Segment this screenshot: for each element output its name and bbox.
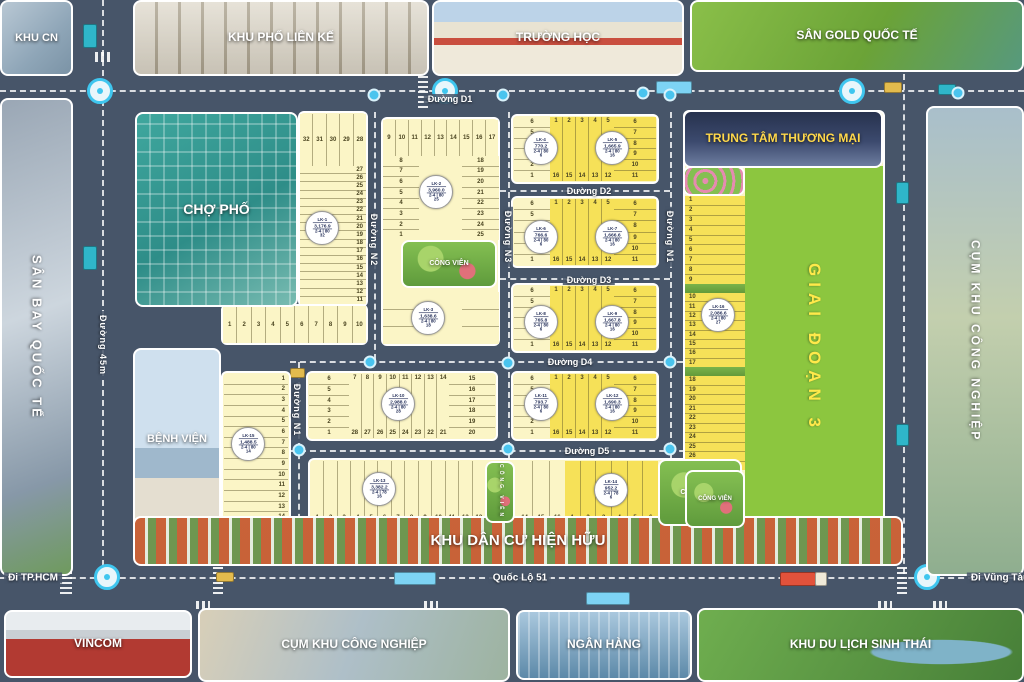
lot-cell: 16 [550,461,565,523]
lot-info-badge: LK-13,176.92-4 | 8032 [305,211,339,245]
lot-cell: 3 [309,406,349,417]
badge-area: 766.6 [534,231,549,238]
lot-cell: 6 [514,374,550,385]
lot-cell: 7 [685,255,745,265]
lot-cell: 4 [266,306,280,343]
lot-cell: 4 [309,396,349,407]
lot-strip-b-left: 87654321 [383,156,419,240]
photo-label-cum-kcn-right: CỤM KHU CÔNG NGHIỆP [928,108,1022,574]
photo-cho-pho: CHỢ PHỐ [135,112,298,307]
lot-cell: 6 [614,117,656,128]
photo-label-san-bay: SÂN BAY QUỐC TẾ [2,100,71,574]
vehicle-icon [216,572,234,582]
lot-cell: 14 [300,272,366,280]
lot-cell: 22 [462,199,499,210]
lot-cell: 22 [300,207,366,215]
lot-cell [462,292,499,310]
badge-area: 952.2 [604,484,619,491]
lot-strip-b-lower-r [462,292,499,344]
road-label-ql51: Quốc Lộ 51 [489,573,551,584]
photo-cong-vien-j: CÔNG VIÊN [685,470,745,528]
badge-area: 1,488.5 [238,438,257,445]
photo-label-san-gold: SÂN GOLD QUỐC TẾ [692,2,1022,70]
badge-count: 32 [320,234,325,238]
lot-strip-f-right: 151617181920 [449,374,495,438]
photo-ngan-hang: NGÂN HÀNG [516,610,692,680]
lot-cell: 215 [563,199,576,265]
road-label-d3: Đường D3 [563,275,615,285]
lot-cell: 2 [383,220,419,231]
lot-cell: 16 [685,349,745,358]
road-label-n1-left: Đường N1 [292,380,302,440]
lot-cell: 16 [449,385,495,396]
vehicle-icon [780,572,816,586]
vehicle-icon [586,592,630,605]
road-label-n1-right: Đường N1 [665,207,675,267]
lot-info-badge: LK-121,690.32-4 | 8016 [595,387,629,421]
lot-strip-b-right: 1819202122232425 [462,156,499,240]
lot-cell: 7 [309,306,323,343]
road-label-n3: Đường N3 [503,207,513,267]
lot-cell: 11 [446,461,459,523]
green-strip [685,284,745,293]
junction-dot [368,89,381,102]
road-label-d2: Đường D2 [563,186,615,196]
photo-label-cong-vien-b: CÔNG VIÊN [403,242,495,286]
lot-cell: 1 [383,230,419,240]
lot-info-badge: LK-133,382.22-4 | 7816 [362,472,396,506]
lot-strip-h-seg2: 141516 [517,461,565,523]
lot-cell: 6 [383,177,419,188]
badge-count: 14 [246,450,251,454]
lot-info-badge: LK-71,666.62-4 | 8016 [595,220,629,254]
badge-count: 6 [540,154,542,158]
lot-info-badge: LK-162,086.62-4 | 8027 [701,298,735,332]
lot-cell: 17 [300,248,366,256]
road-label-d1: Đường D1 [424,94,476,104]
photo-khu-dan-cu: KHU DÂN CƯ HIỆN HỮU [133,516,903,566]
lot-cell: 23 [462,209,499,220]
lot-cell: 11 [300,297,366,304]
vehicle-icon [83,246,97,270]
lot-cell: 10 [353,306,366,343]
lot-cell: 11 [224,480,288,491]
badge-count: 6 [610,496,612,500]
lot-cell: 11 [409,120,422,156]
lot-cell: 827 [362,374,375,438]
lot-cell: 1 [309,428,349,438]
photo-truong-hoc: TRƯỜNG HỌC [432,0,684,76]
lot-cell: 314 [576,374,589,438]
lot-cell: 11 [614,255,656,265]
lot-cell: 13 [224,502,288,513]
lot-cell: 9 [685,275,745,284]
lot-cell: 6 [309,374,349,385]
lot-cell: 13 [435,120,448,156]
lot-strip-j1: 123456789 [685,196,745,284]
crosswalk [897,567,907,594]
lot-cell: 24 [685,433,745,443]
badge-area: 1,690.3 [602,398,621,405]
lot-info-badge: LK-91,667.82-4 | 8016 [595,305,629,339]
photo-khu-pho-lien-ke: KHU PHỐ LIÊN KẾ [133,0,429,76]
photo-label-tttm: TRUNG TÂM THƯƠNG MẠI [685,112,881,166]
lot-cell: 30 [327,114,340,166]
badge-area: 2,988.0 [388,398,407,405]
badge-count: 16 [377,495,382,499]
lot-cell: 5 [383,188,419,199]
lot-cell: 19 [449,417,495,428]
badge-area: 3,176.9 [312,222,331,229]
lot-cell: 6 [685,245,745,255]
lot-cell: 5 [309,385,349,396]
lot-cell: 24 [462,220,499,231]
badge-area: 765.8 [534,316,549,323]
lot-info-badge: LK-51,665.92-4 | 8016 [595,131,629,165]
lot-cell: 2 [237,306,251,343]
lot-cell: 6 [295,306,309,343]
lot-cell: 215 [563,374,576,438]
lot-cell: 17 [449,396,495,407]
photo-cong-vien-b: CÔNG VIÊN [401,240,497,288]
lot-cell: 314 [576,286,589,350]
lot-info-badge: LK-14952.22-4 | 786 [594,473,628,507]
badge-count: 25 [434,198,439,202]
lot-cell: 1 [311,461,324,523]
junction-dot [502,443,515,456]
road-label-di-vungtau: Đi Vũng Tàu [967,573,1024,584]
lot-cell: 28 [354,114,366,166]
lot-cell: 16 [473,120,486,156]
photo-label-khu-cn: KHU CN [2,2,71,74]
badge-area: 793.7 [534,398,549,405]
road-centerline [0,90,1024,92]
badge-area: 1,665.9 [602,142,621,149]
badge-area: 3,382.2 [369,483,388,490]
lot-cell: 8 [383,156,419,167]
photo-label-khu-pho-lien-ke: KHU PHỐ LIÊN KẾ [135,2,427,74]
road-label-r45: Đường 45m [98,311,108,379]
lot-cell [462,327,499,344]
road-centerline [903,74,905,574]
badge-area: 1,638.6 [418,312,437,319]
badge-count: 16 [610,410,615,414]
lot-cell: 215 [563,286,576,350]
junction-dot [664,443,677,456]
photo-label-vincom: VINCOM [6,612,190,676]
lot-cell: 10 [396,120,409,156]
lot-cell: 8 [405,461,418,523]
crosswalk [95,52,111,62]
vehicle-icon [815,572,827,586]
lot-cell: 31 [313,114,326,166]
photo-label-truong-hoc: TRƯỜNG HỌC [434,2,682,74]
lot-cell: 5 [281,306,295,343]
lot-cell: 7 [614,210,656,221]
road-centerline [508,112,510,458]
lot-cell: 1322 [425,374,438,438]
lot-cell: 3 [252,306,266,343]
lot-cell: 8 [685,265,745,275]
lot-info-badge: LK-23,960.02-4 | 8025 [419,175,453,209]
lot-cell: 3 [685,216,745,226]
lot-cell: 12 [224,491,288,502]
lot-cell: 1 [514,340,550,350]
lot-cell: 23 [300,199,366,207]
lot-cell: 1 [685,196,745,206]
badge-count: 27 [716,321,721,325]
lot-cell: 9 [419,461,432,523]
badge-area: 3,960.0 [426,186,445,193]
phase-3-label: GIAI ĐOẠN 3 [804,263,824,433]
badge-area: 770.2 [534,142,549,149]
lot-strip-h-seg1: 12345678910111213 [311,461,485,523]
lot-cell: 13 [473,461,485,523]
road-label-di-hcm: Đi TP.HCM [4,573,62,584]
lot-cell: 32 [300,114,313,166]
photo-label-du-lich: KHU DU LỊCH SINH THÁI [699,610,1022,680]
lot-cell: 4 [685,226,745,236]
lot-info-badge: LK-31,638.62-4 | 8018 [411,301,445,335]
lot-info-badge: LK-11793.72-4 | 806 [524,387,558,421]
badge-count: 28 [396,410,401,414]
lot-cell: 6 [614,199,656,210]
vehicle-icon [290,368,305,378]
lot-cell: 17 [685,359,745,367]
vehicle-icon [896,424,909,446]
lot-cell: 15 [685,340,745,349]
lot-cell: 14 [447,120,460,156]
lot-cell: 6 [614,286,656,297]
lot-cell: 20 [462,177,499,188]
roundabout-icon [87,78,113,104]
lot-cell: 9 [224,459,288,470]
lot-cell: 215 [563,117,576,181]
vehicle-icon [394,572,436,585]
junction-dot [293,444,306,457]
badge-count: 16 [610,243,615,247]
lot-cell: 16 [300,256,366,264]
lot-cell: 15 [449,374,495,385]
junction-dot [664,356,677,369]
photo-cum-kcn-right: CỤM KHU CÔNG NGHIỆP [926,106,1024,576]
lot-cell: 20 [449,428,495,438]
junction-dot [952,87,965,100]
junction-dot [664,89,677,102]
lot-strip-f-left: 654321 [309,374,349,438]
photo-label-cum-kcn-bottom: CỤM KHU CÔNG NGHIỆP [200,610,508,680]
lot-cell: 6 [643,461,658,523]
lot-cell: 12 [459,461,472,523]
lot-cell: 6 [514,199,550,210]
lot-cell: 1 [514,255,550,265]
lot-cell: 7 [383,167,419,178]
photo-san-gold: SÂN GOLD QUỐC TẾ [690,0,1024,72]
lot-cell: 3 [383,209,419,220]
lot-cell: 15 [533,461,549,523]
lot-cell: 9 [383,120,396,156]
lot-strip-j3: 18192021222324252627 [685,376,745,470]
lot-info-badge: LK-102,988.02-4 | 8028 [381,387,415,421]
lot-cell: 1 [514,428,550,438]
lot-cell: 11 [614,428,656,438]
lot-cell: 728 [349,374,362,438]
photo-san-bay: SÂN BAY QUỐC TẾ [0,98,73,576]
lot-cell: 314 [576,117,589,181]
lot-cell: 15 [460,120,473,156]
road-label-d5: Đường D5 [561,446,613,456]
road-label-n2: Đường N2 [369,210,379,270]
lot-cell: 21 [462,188,499,199]
lot-cell: 25 [300,182,366,190]
badge-area: 1,667.8 [602,316,621,323]
lot-cell: 18 [462,156,499,167]
road-centerline [670,112,672,458]
master-plan-map: GIAI ĐOẠN 332313029282726252423222120191… [0,0,1024,682]
vehicle-icon [83,24,97,48]
lot-cell: 6 [514,286,550,297]
lot-cell: 3 [338,461,351,523]
lot-cell: 5 [685,236,745,246]
lot-cell: 1 [514,171,550,181]
lot-cell: 1421 [437,374,449,438]
photo-cum-kcn-bottom: CỤM KHU CÔNG NGHIỆP [198,608,510,682]
junction-dot [364,356,377,369]
vehicle-icon [896,182,909,204]
lot-cell: 10 [614,417,656,428]
lot-cell: 4 [383,199,419,210]
photo-tttm: TRUNG TÂM THƯƠNG MẠI [683,110,883,168]
badge-area: 1,666.6 [602,231,621,238]
lot-cell: 9 [338,306,352,343]
lot-cell: 25 [685,443,745,453]
lot-cell: 18 [449,406,495,417]
lot-cell: 1 [223,306,237,343]
lot-cell: 6 [614,374,656,385]
lot-cell: 7 [614,297,656,308]
photo-label-cong-vien-s: CÔNG VIÊN [487,463,513,521]
lot-cell: 3 [224,395,288,406]
phase-3-area: GIAI ĐOẠN 3 [745,166,883,530]
photo-label-khu-dan-cu: KHU DÂN CƯ HIỆN HỮU [135,518,901,564]
lot-info-badge: LK-8765.82-4 | 806 [524,305,558,339]
lot-strip-b-top: 91011121314151617 [383,120,498,156]
lot-cell: 18 [685,376,745,386]
badge-count: 16 [610,328,615,332]
lot-cell: 27 [300,166,366,174]
junction-dot [637,87,650,100]
junction-dot [502,357,515,370]
lot-cell: 2 [309,417,349,428]
photo-khu-cn: KHU CN [0,0,73,76]
photo-flower-park [683,166,745,196]
lot-cell: 4 [224,406,288,417]
badge-count: 6 [540,328,542,332]
badge-count: 16 [610,154,615,158]
lot-cell: 2 [685,206,745,216]
lot-cell: 10 [432,461,445,523]
lot-cell [383,327,419,344]
lot-cell: 5 [628,461,644,523]
lot-cell: 23 [685,424,745,434]
photo-label-cho-pho: CHỢ PHỐ [137,114,296,305]
badge-count: 6 [540,410,542,414]
lot-info-badge: LK-6766.62-4 | 806 [524,220,558,254]
lot-cell: 19 [685,386,745,396]
lot-cell: 8 [324,306,338,343]
photo-cong-vien-s: CÔNG VIÊN [485,461,515,523]
lot-info-badge: LK-151,488.52-4 | 8014 [231,427,265,461]
road-centerline [290,450,745,452]
badge-count: 18 [426,324,431,328]
lot-cell: 26 [300,174,366,182]
lot-cell: 22 [685,414,745,424]
lot-cell [462,310,499,328]
lot-cell: 21 [685,405,745,415]
lot-cell: 15 [300,264,366,272]
road-centerline [290,361,683,363]
badge-area: 2,086.6 [708,309,727,316]
lot-cell: 1 [224,374,288,385]
photo-vincom: VINCOM [4,610,192,678]
lot-cell: 25 [462,230,499,240]
photo-label-cong-vien-j: CÔNG VIÊN [687,472,743,526]
vehicle-icon [884,82,902,93]
lot-strip-a-bottom: 12345678910 [223,306,366,343]
lot-cell: 10 [224,470,288,481]
lot-cell: 11 [614,340,656,350]
lot-cell: 14 [517,461,533,523]
lot-cell: 6 [514,117,550,128]
photo-benh-vien: BỆNH VIỆN [133,348,221,530]
lot-info-badge: LK-4770.22-4 | 806 [524,131,558,165]
lot-cell: 12 [300,289,366,297]
lot-cell: 19 [462,167,499,178]
lot-strip-a-top: 3231302928 [300,114,366,166]
photo-label-benh-vien: BỆNH VIỆN [135,350,219,528]
lot-cell: 2 [324,461,337,523]
green-strip [685,367,745,376]
lot-cell: 13 [300,280,366,288]
junction-dot [497,89,510,102]
lot-cell: 29 [340,114,353,166]
photo-du-lich: KHU DU LỊCH SINH THÁI [697,608,1024,682]
roundabout-icon [94,564,120,590]
lot-cell: 17 [486,120,498,156]
road-label-d4: Đường D4 [544,357,596,367]
lot-cell: 12 [422,120,435,156]
lot-cell: 14 [685,331,745,340]
roundabout-icon [839,78,865,104]
lot-cell: 1 [565,461,581,523]
photo-label-ngan-hang: NGÂN HÀNG [518,612,690,678]
lot-cell: 11 [614,171,656,181]
badge-count: 6 [540,243,542,247]
lot-cell: 2 [224,385,288,396]
lot-cell: 24 [300,191,366,199]
lot-cell: 20 [685,395,745,405]
lot-cell: 5 [224,417,288,428]
lot-cell: 314 [576,199,589,265]
